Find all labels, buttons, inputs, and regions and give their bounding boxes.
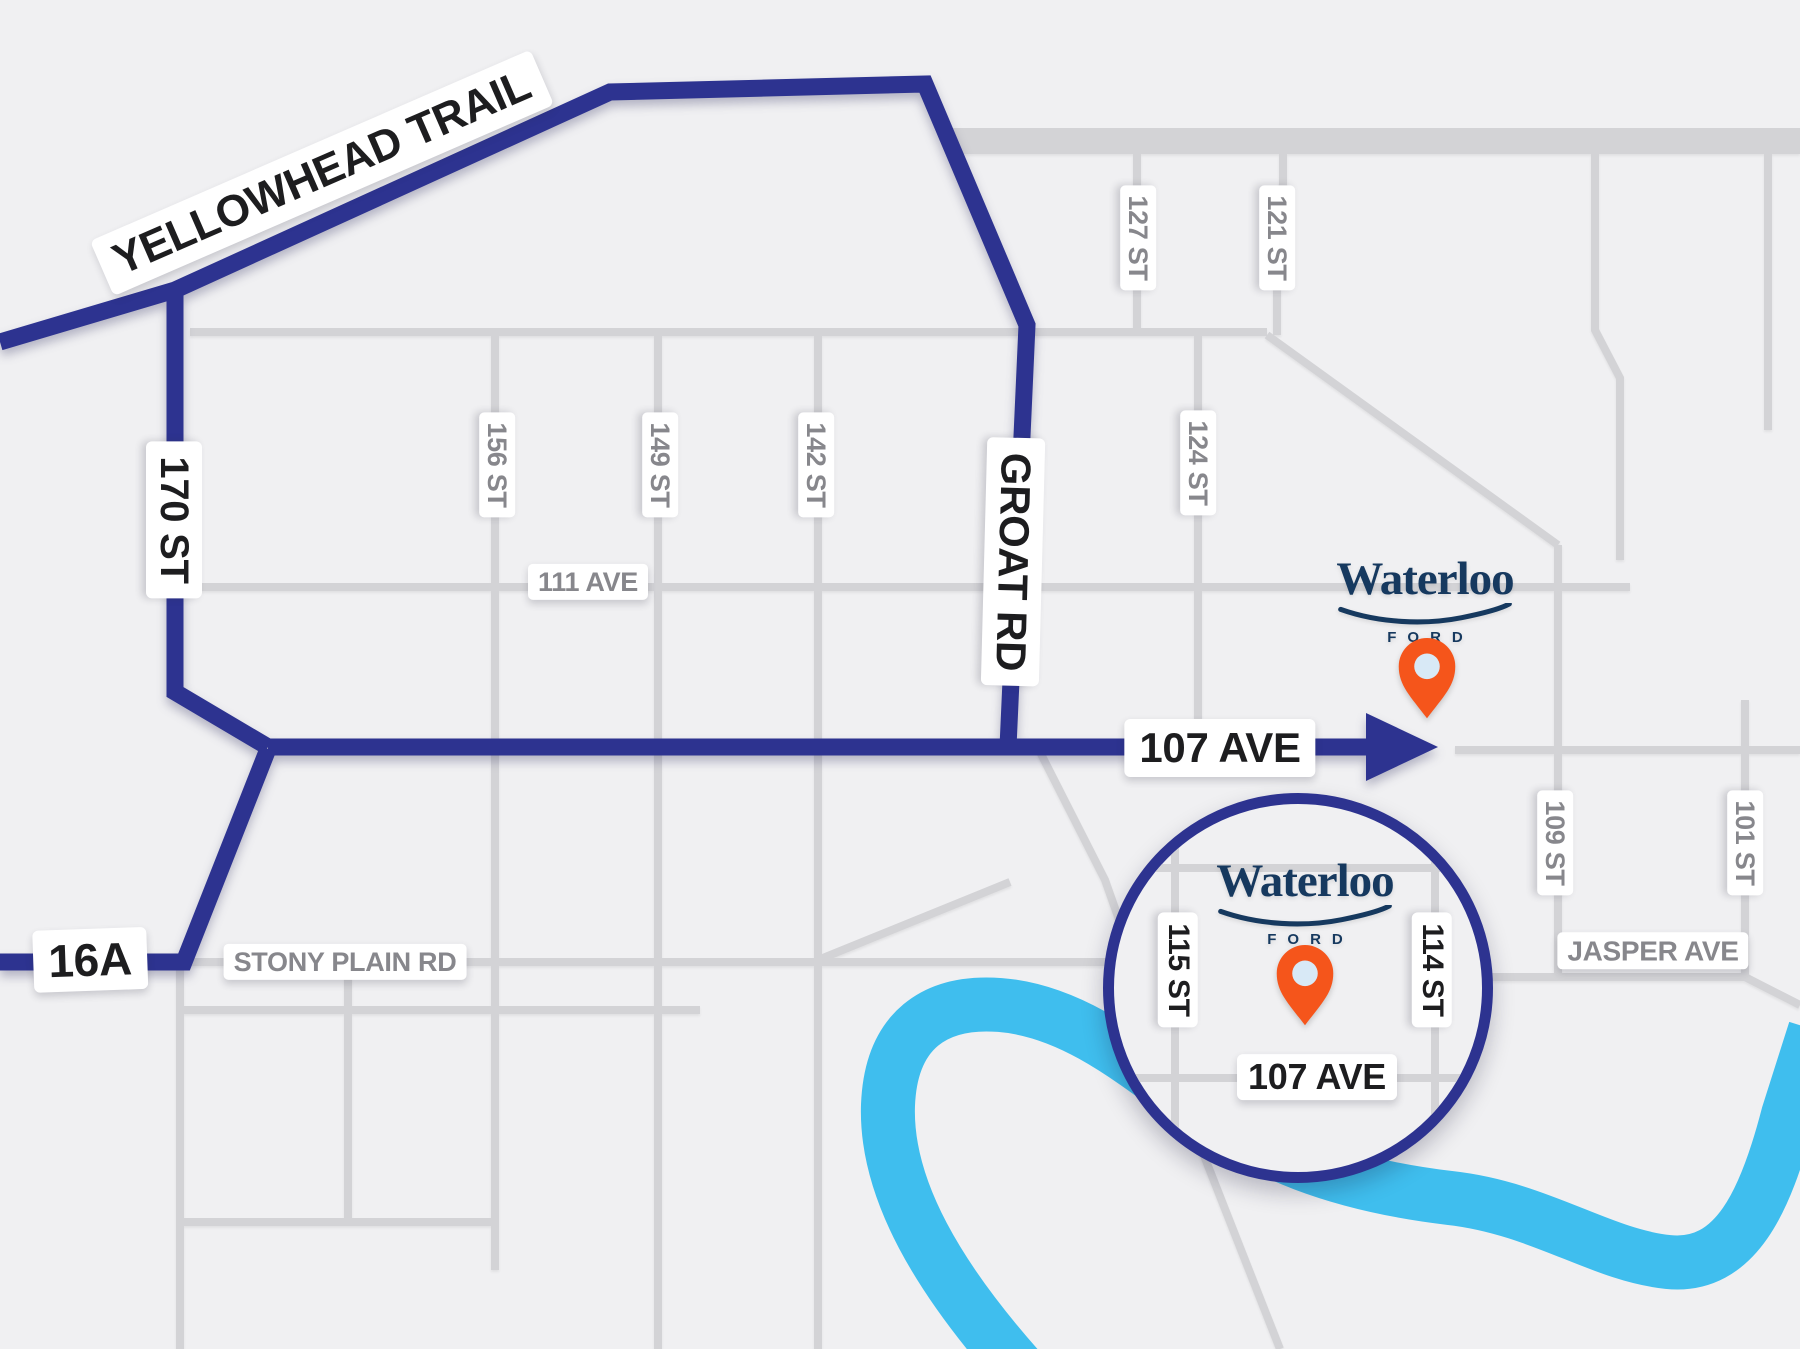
street-stony-plain-branch: [818, 882, 1010, 960]
road-label-101-st: 101 ST: [1727, 790, 1763, 895]
map-pin-icon: [1274, 943, 1336, 1031]
road-label-142-st: 142 ST: [798, 412, 834, 517]
road-label-127-st: 127 ST: [1120, 185, 1156, 290]
swoosh-underline-icon: [1330, 603, 1520, 625]
waterloo-ford-logo: Waterloo FORD: [1330, 556, 1520, 646]
street-vertical-right-jog: [1595, 153, 1620, 560]
road-label-121-st: 121 ST: [1259, 185, 1295, 290]
road-label-124-st: 124 ST: [1180, 410, 1216, 515]
road-label-149-st: 149 ST: [642, 412, 678, 517]
road-label-jasper-ave: JASPER AVE: [1557, 932, 1748, 969]
logo-wordmark: Waterloo: [1216, 858, 1393, 905]
road-label-stony-plain-rd: STONY PLAIN RD: [224, 944, 467, 980]
road-label-107-ave: 107 AVE: [1124, 719, 1315, 777]
map-pin-icon: [1396, 636, 1458, 724]
map-canvas: YELLOWHEAD TRAIL 170 ST GROAT RD 107 AVE…: [0, 0, 1800, 1349]
road-label-170-st: 170 ST: [146, 441, 202, 598]
inset-label-107-ave: 107 AVE: [1237, 1054, 1397, 1100]
road-label-16a: 16A: [32, 927, 148, 993]
road-label-groat-rd: GROAT RD: [981, 437, 1046, 687]
road-label-109-st: 109 ST: [1537, 790, 1573, 895]
swoosh-underline-icon: [1210, 905, 1400, 927]
location-zoom-inset: Waterloo FORD 115 ST 114 ST 107 AVE: [1103, 793, 1493, 1183]
waterloo-ford-logo-inset: Waterloo FORD: [1210, 858, 1400, 948]
logo-wordmark: Waterloo: [1336, 556, 1513, 603]
road-label-156-st: 156 ST: [479, 412, 515, 517]
inset-label-115-st: 115 ST: [1158, 912, 1198, 1027]
inset-label-114-st: 114 ST: [1412, 912, 1452, 1027]
road-label-111-ave: 111 AVE: [528, 564, 648, 600]
street-diagonal-121-109: [1267, 335, 1558, 545]
